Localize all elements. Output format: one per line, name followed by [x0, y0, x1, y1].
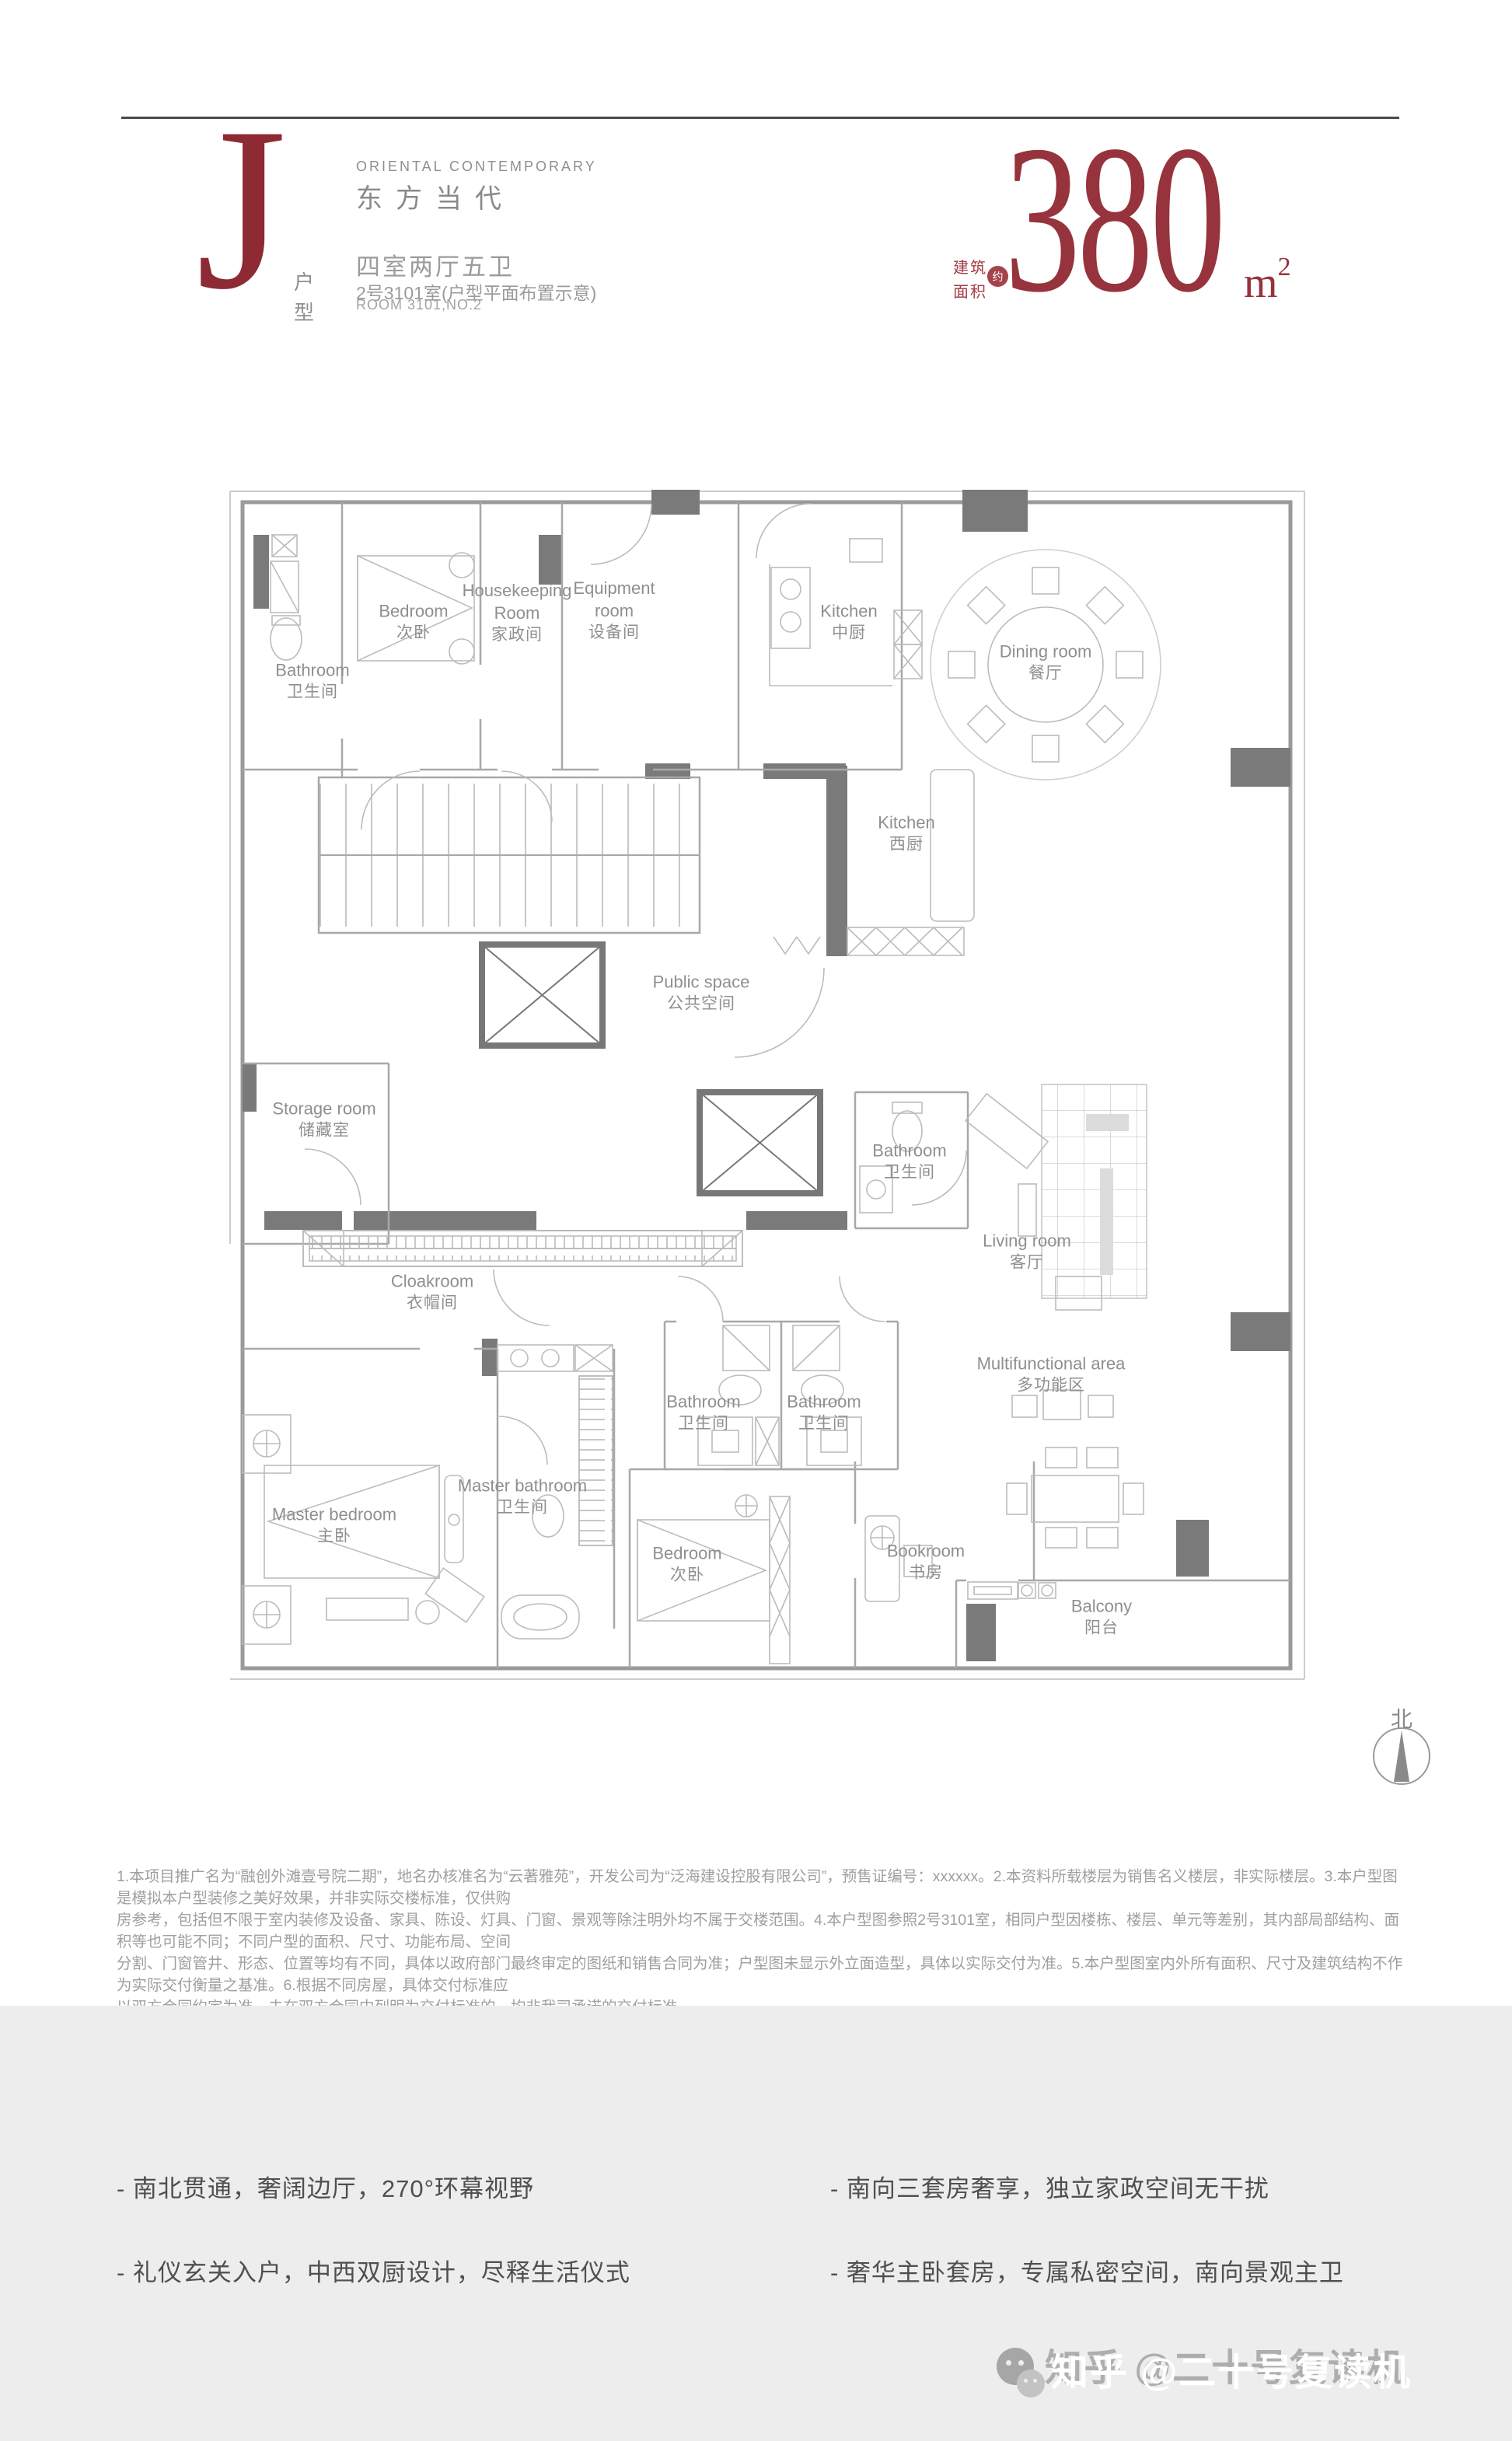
room-label-bookroom: Bookroom书房: [887, 1540, 965, 1584]
highlight-item: - 礼仪玄关入户，中西双厨设计，尽释生活仪式: [117, 2253, 630, 2288]
room-label-bathroom-north: Bathroom卫生间: [275, 659, 349, 704]
floorplan-drawing: [218, 482, 1430, 1804]
brand-name-en: ORIENTAL CONTEMPORARY: [356, 159, 597, 175]
room-label-bedroom-north: Bedroom次卧: [379, 600, 448, 644]
room-label-balcony: Balcony阳台: [1071, 1595, 1132, 1640]
area-unit: m2: [1244, 254, 1291, 305]
brand-name-cn: 东方当代: [356, 177, 515, 215]
watermark: 知乎 @二十号复读机: [997, 2341, 1412, 2396]
room-label-public-space: Public space公共空间: [653, 971, 750, 1015]
cloakroom-rail: [303, 1231, 742, 1266]
area-label-line1: 建筑: [953, 257, 987, 281]
area-unit-m: m: [1244, 259, 1278, 307]
disclaimer: 1.本项目推广名为“融创外滩壹号院二期”，地名办核准名为“云著雅苑”，开发公司为…: [117, 1866, 1407, 2018]
room-label-bathroom-right: Bathroom卫生间: [787, 1391, 861, 1435]
room-label-bathroom-middle: Bathroom卫生间: [872, 1140, 946, 1184]
room-label-master-bedroom: Master bedroom主卧: [272, 1503, 396, 1548]
wall-fills: [243, 490, 1290, 1661]
room-label-kitchen-chinese: Kitchen中厨: [820, 600, 877, 644]
brochure-page: J 户型 ORIENTAL CONTEMPORARY 东方当代 四室两厅五卫 2…: [0, 0, 1512, 2441]
area-label-line2: 面积: [953, 281, 987, 305]
unit-letter: J: [196, 92, 287, 325]
elevator-shafts: [482, 945, 820, 1193]
disclaimer-line: 分割、门窗管井、形态、位置等均有不同，具体以政府部门最终审定的图纸和销售合同为准…: [117, 1953, 1407, 1996]
room-label-kitchen-western: Kitchen西厨: [878, 812, 934, 856]
room-label-dining-room: Dining room餐厅: [1000, 641, 1092, 685]
room-label-master-bathroom: Master bathroom卫生间: [449, 1475, 596, 1519]
compass-icon: [1374, 1728, 1430, 1784]
unit-type-vertical-label: 户型: [294, 267, 317, 328]
room-label-bathroom-left: Bathroom卫生间: [666, 1391, 740, 1435]
disclaimer-line: 1.本项目推广名为“融创外滩壹号院二期”，地名办核准名为“云著雅苑”，开发公司为…: [117, 1866, 1407, 1909]
highlight-item: - 奢华主卧套房，专属私密空间，南向景观主卫: [830, 2253, 1344, 2288]
room-label-storage-room: Storage room储藏室: [272, 1098, 375, 1142]
layout-summary: 四室两厅五卫: [356, 247, 515, 282]
staircase: [319, 777, 700, 933]
room-label-living-room: Living room客厅: [983, 1230, 1071, 1274]
disclaimer-line: 房参考，包括但不限于室内装修及设备、家具、陈设、灯具、门窗、景观等除注明外均不属…: [117, 1909, 1407, 1953]
watermark-text: 知乎 @二十号复读机: [1051, 2341, 1412, 2396]
highlight-item: - 南向三套房奢享，独立家政空间无干扰: [830, 2169, 1269, 2204]
area-label: 建筑 面积: [953, 257, 987, 305]
area-value: 380: [1004, 113, 1223, 325]
area-unit-sup: 2: [1278, 253, 1291, 281]
room-number-en: ROOM 3101,NO.2: [356, 297, 482, 313]
chat-bubbles-icon: [997, 2341, 1046, 2396]
room-label-multifunctional-area: Multifunctional area多功能区: [977, 1353, 1126, 1397]
room-label-equipment-room: Equipment room设备间: [552, 577, 676, 644]
room-label-bedroom-south: Bedroom次卧: [652, 1542, 721, 1587]
compass-north-label: 北: [1391, 1702, 1412, 1734]
highlight-item: - 南北贯通，奢阔边厅，270°环幕视野: [117, 2169, 534, 2204]
room-label-cloakroom: Cloakroom衣帽间: [391, 1270, 473, 1315]
